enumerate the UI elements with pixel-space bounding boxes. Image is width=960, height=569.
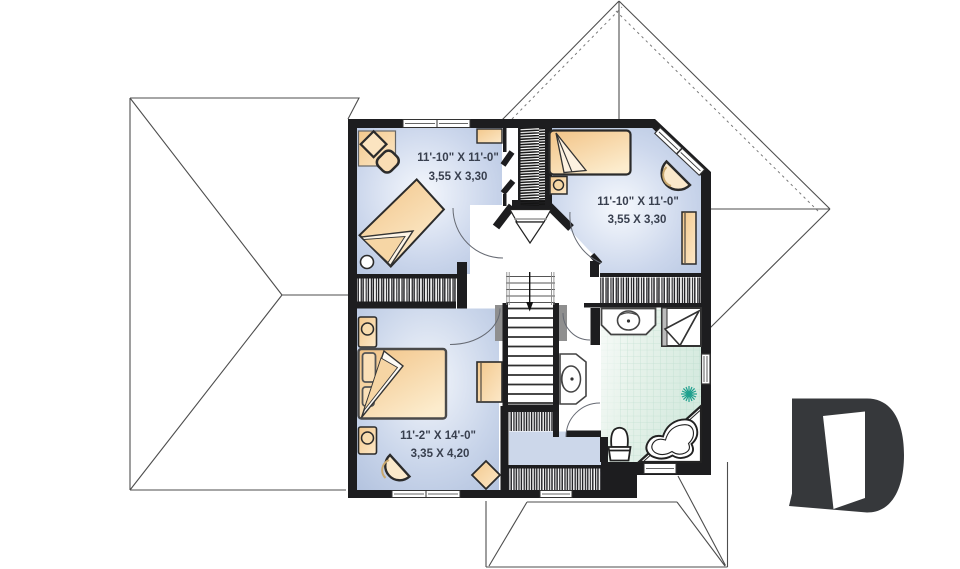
svg-text:3,35 X 4,20: 3,35 X 4,20	[411, 448, 470, 460]
svg-text:11'-2" X 14'-0": 11'-2" X 14'-0"	[400, 430, 476, 442]
svg-text:11'-10" X 11'-0": 11'-10" X 11'-0"	[597, 196, 679, 208]
svg-text:11'-10" X 11'-0": 11'-10" X 11'-0"	[417, 152, 499, 164]
svg-text:3,55 X 3,30: 3,55 X 3,30	[429, 171, 488, 183]
svg-text:3,55 X 3,30: 3,55 X 3,30	[608, 214, 667, 226]
